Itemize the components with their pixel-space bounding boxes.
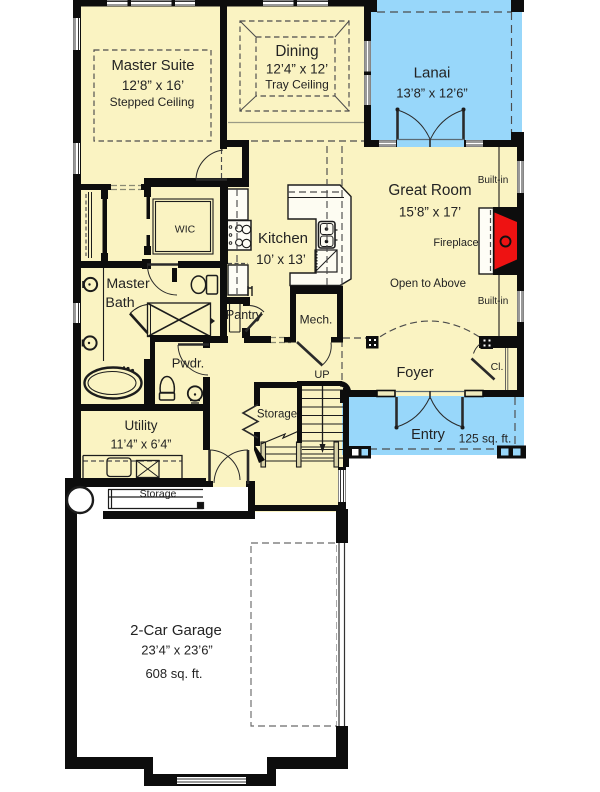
svg-text:Lanai: Lanai [414, 65, 451, 82]
svg-text:Pwdr.: Pwdr. [172, 356, 205, 371]
svg-text:2-Car Garage: 2-Car Garage [130, 622, 222, 639]
svg-text:125 sq. ft.: 125 sq. ft. [459, 432, 512, 446]
svg-text:Fireplace: Fireplace [433, 237, 478, 249]
svg-text:Utility: Utility [125, 418, 158, 433]
svg-text:Tray Ceiling: Tray Ceiling [265, 78, 329, 92]
svg-text:Open to Above: Open to Above [390, 278, 466, 290]
svg-text:15’8” x 17’: 15’8” x 17’ [399, 205, 461, 220]
svg-text:10’ x 13’: 10’ x 13’ [256, 252, 306, 267]
svg-text:Pantry: Pantry [226, 308, 263, 322]
svg-text:Kitchen: Kitchen [258, 230, 308, 247]
svg-text:608 sq. ft.: 608 sq. ft. [145, 666, 202, 681]
svg-text:Stepped Ceiling: Stepped Ceiling [110, 95, 195, 109]
svg-text:Bath: Bath [105, 295, 134, 311]
svg-text:Mech.: Mech. [300, 313, 333, 327]
svg-text:Cl.: Cl. [491, 361, 504, 373]
svg-text:Built-in: Built-in [478, 296, 509, 307]
svg-text:23’4” x 23’6”: 23’4” x 23’6” [141, 643, 213, 658]
svg-text:13’8” x 12’6”: 13’8” x 12’6” [396, 86, 468, 101]
svg-text:WIC: WIC [175, 224, 196, 236]
svg-text:UP: UP [314, 369, 329, 381]
svg-text:Dining: Dining [275, 43, 318, 60]
svg-text:Foyer: Foyer [396, 365, 433, 381]
svg-text:Master Suite: Master Suite [111, 58, 194, 74]
svg-text:Entry: Entry [411, 427, 446, 443]
svg-text:11’4” x 6’4”: 11’4” x 6’4” [111, 438, 172, 452]
svg-text:Storage: Storage [140, 488, 177, 500]
svg-text:Built-in: Built-in [478, 175, 509, 186]
svg-text:Storage: Storage [257, 409, 297, 421]
svg-text:12’8” x 16’: 12’8” x 16’ [122, 78, 184, 93]
svg-text:12’4” x 12’: 12’4” x 12’ [266, 62, 328, 77]
svg-text:Master: Master [106, 276, 150, 292]
svg-text:Great Room: Great Room [388, 182, 471, 199]
